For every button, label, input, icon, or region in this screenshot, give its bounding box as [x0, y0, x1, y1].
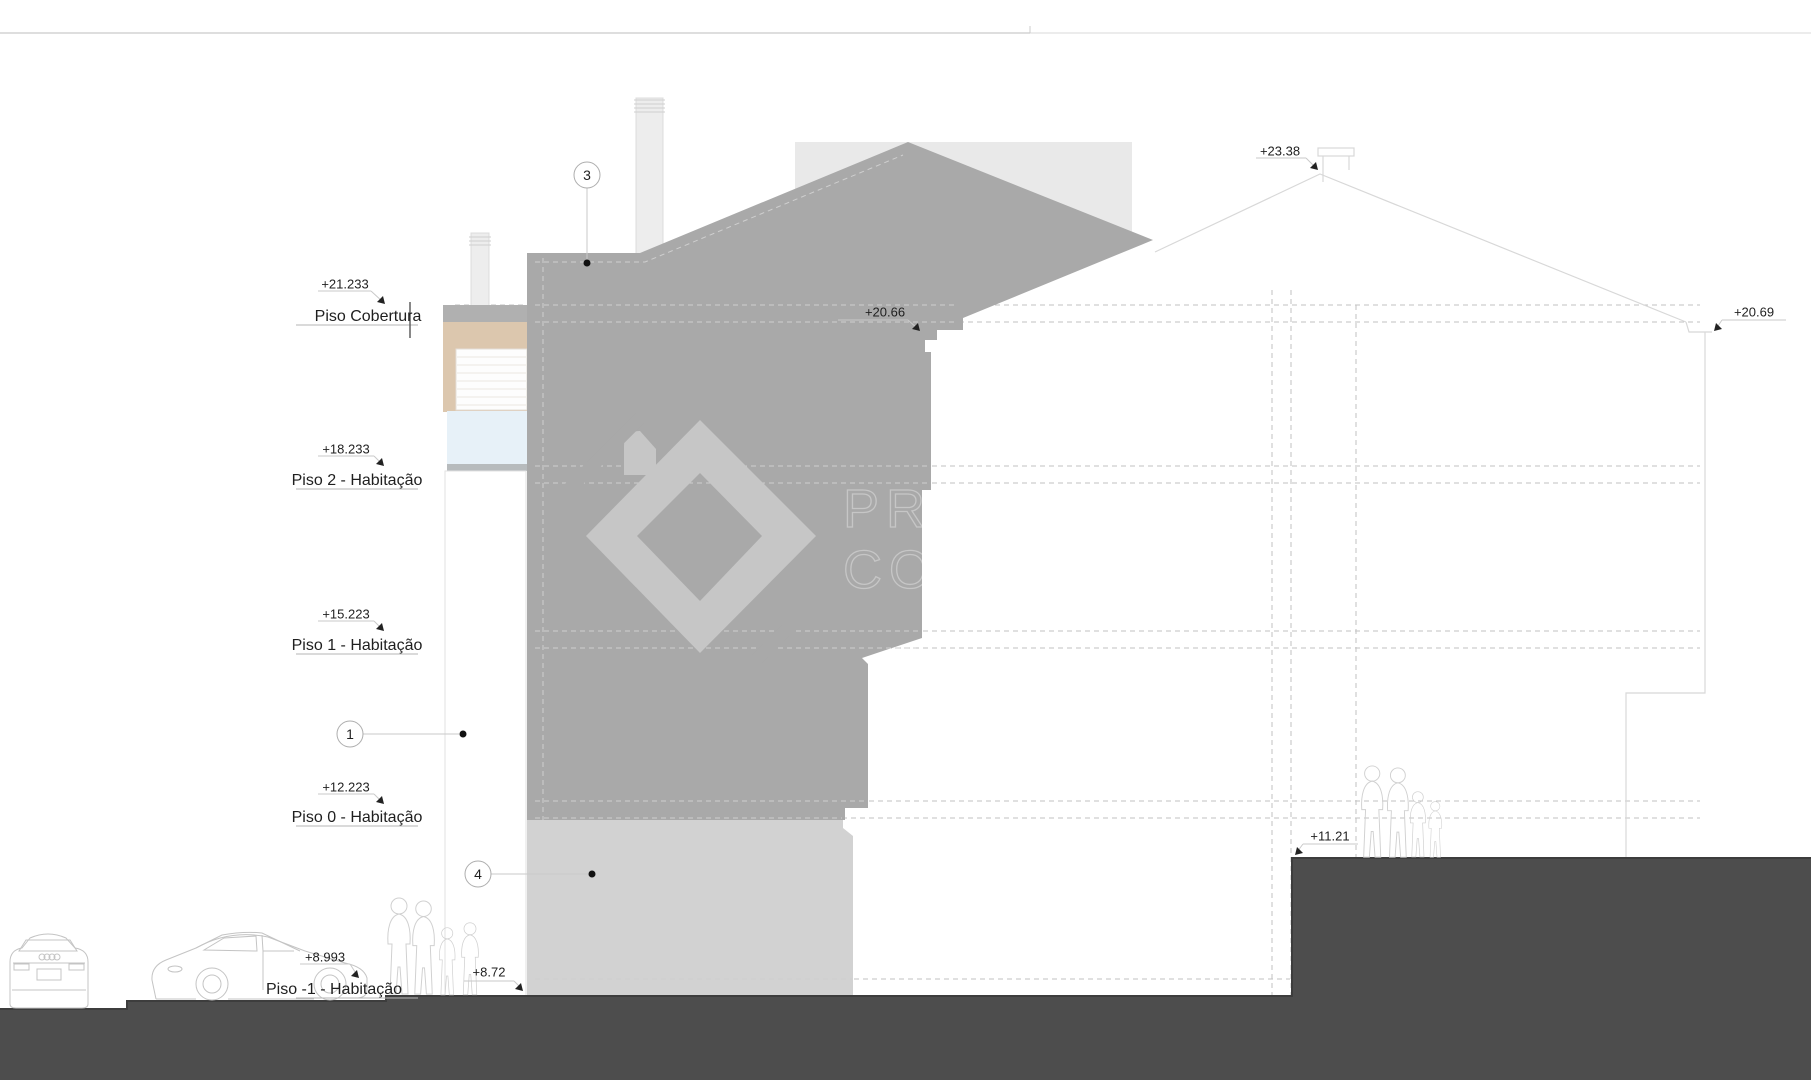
left-section-cut: [443, 305, 527, 996]
sill: [447, 464, 527, 471]
car-side-view: [152, 932, 367, 1000]
chimney-left: [469, 233, 491, 307]
car-rear-view: [10, 934, 88, 1008]
terrain: [0, 858, 1811, 1080]
glass-panel: [447, 411, 527, 464]
people-right: [1362, 766, 1442, 857]
level-annotations: [296, 291, 418, 998]
title-block-rule: [0, 26, 1811, 33]
background-building-outline: [1155, 148, 1712, 858]
watermark-text-line2: CO: [843, 540, 938, 600]
building-section-mass: [527, 142, 1153, 820]
base-plinth: [527, 820, 853, 996]
section-drawing-canvas: PRO CO: [0, 0, 1811, 1080]
watermark-text-line1: PRO: [843, 479, 981, 539]
brick-window-panel: [456, 349, 527, 410]
drawing-geometry: PRO CO: [0, 0, 1811, 1080]
chimney-main: [634, 98, 665, 254]
roof-slab: [443, 305, 527, 322]
